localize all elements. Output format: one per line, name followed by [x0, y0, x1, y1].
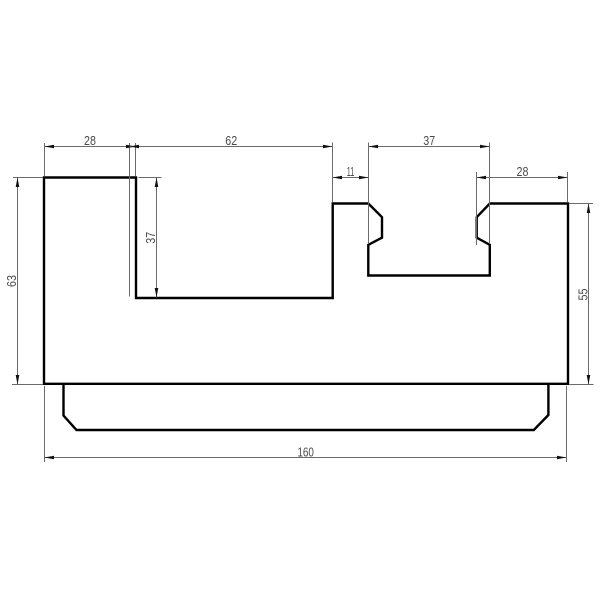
svg-text:28: 28 — [517, 164, 529, 179]
svg-text:55: 55 — [575, 289, 590, 301]
svg-text:160: 160 — [297, 444, 314, 459]
svg-text:63: 63 — [4, 275, 19, 287]
svg-text:37: 37 — [143, 232, 158, 244]
svg-text:62: 62 — [225, 133, 237, 148]
svg-text:11: 11 — [347, 164, 355, 179]
svg-text:28: 28 — [84, 133, 96, 148]
svg-text:37: 37 — [423, 133, 435, 148]
